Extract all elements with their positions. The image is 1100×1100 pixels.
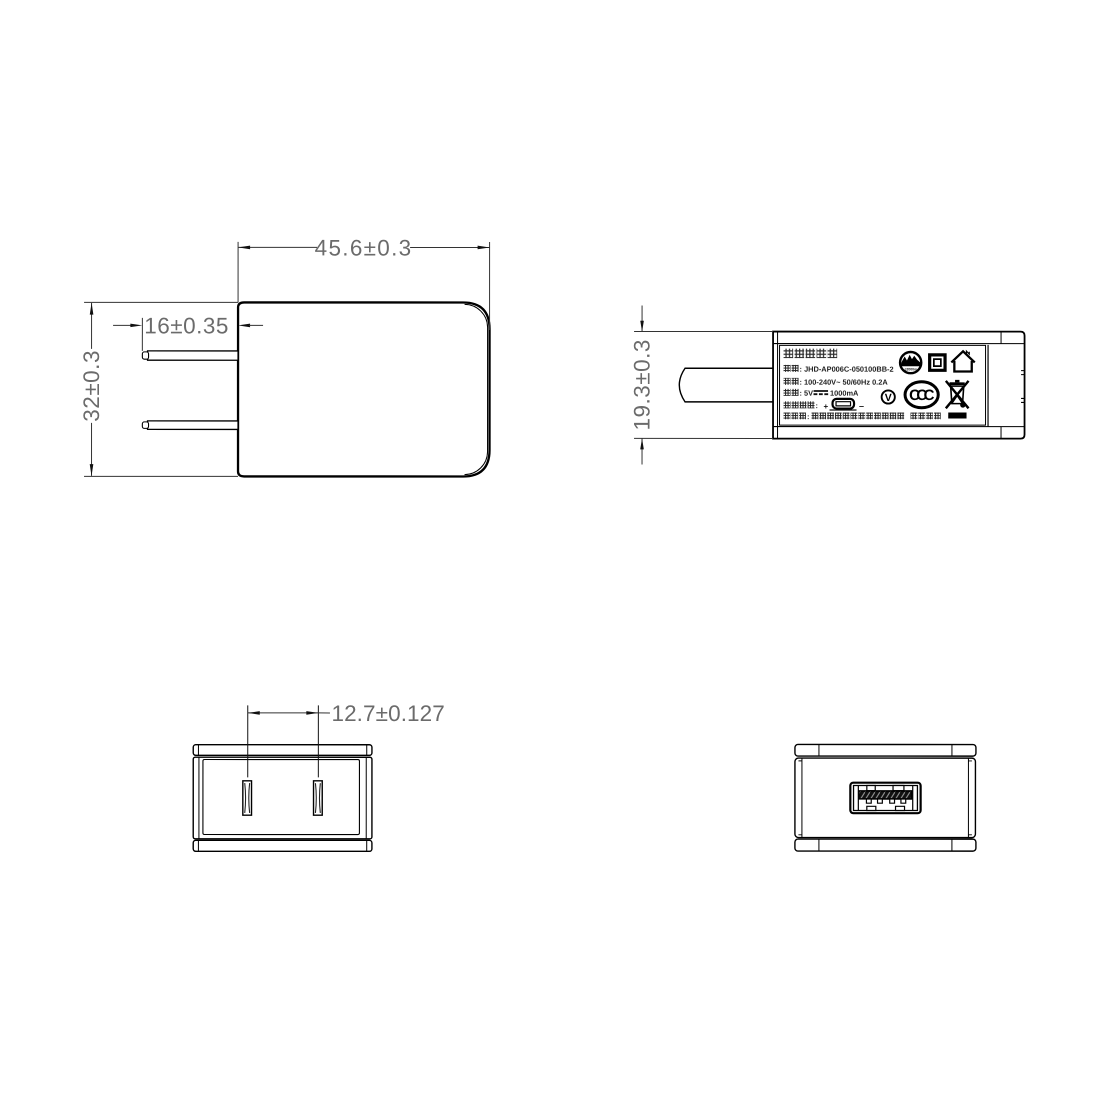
svg-text:≤2000m: ≤2000m — [905, 367, 917, 371]
svg-text:32±0.3: 32±0.3 — [79, 350, 104, 422]
svg-text:–: – — [859, 401, 864, 411]
svg-text:V: V — [885, 392, 892, 404]
svg-text:: 5V: : 5V — [800, 389, 814, 398]
svg-text:CCC: CCC — [909, 387, 934, 404]
svg-text::: : — [816, 401, 818, 410]
svg-text:19.3±0.3: 19.3±0.3 — [630, 339, 655, 430]
svg-text::: : — [807, 412, 809, 421]
svg-text:: 100-240V~ 50/60Hz 0.2A: : 100-240V~ 50/60Hz 0.2A — [800, 378, 889, 387]
svg-text:: JHD-AP006C-050100BB-2: : JHD-AP006C-050100BB-2 — [800, 365, 894, 374]
svg-text:12.7±0.127: 12.7±0.127 — [331, 701, 444, 726]
svg-text:1000mA: 1000mA — [830, 389, 859, 398]
svg-text:45.6±0.3: 45.6±0.3 — [315, 235, 413, 260]
svg-text:+: + — [824, 402, 829, 411]
svg-text:16±0.35: 16±0.35 — [144, 313, 229, 338]
